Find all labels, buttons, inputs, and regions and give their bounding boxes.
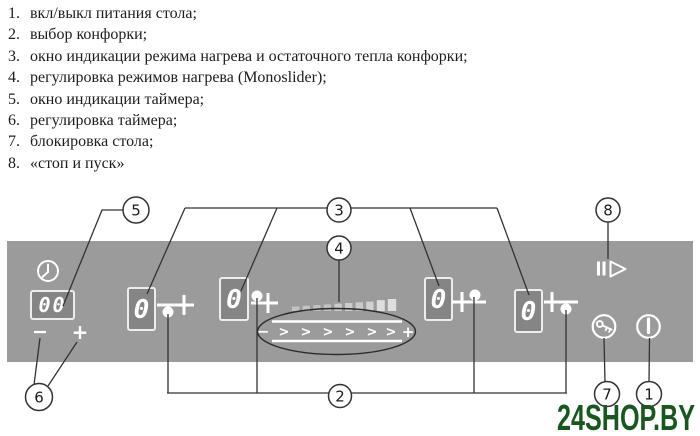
chevron-right-icon: >	[279, 325, 290, 340]
chevron-right-icon: >	[323, 325, 334, 340]
callout-3: 3	[327, 198, 351, 222]
burner-value: 0	[134, 295, 150, 325]
chevron-right-icon: >	[386, 325, 397, 340]
burner-display-1: 0	[128, 288, 155, 330]
callout-number: 3	[334, 202, 344, 220]
callout-8: 8	[596, 198, 620, 222]
callout-number: 2	[335, 388, 345, 406]
burner-value: 0	[521, 297, 537, 327]
chevron-right-icon: >	[345, 325, 356, 340]
watermark: 24SHOP.BY	[557, 397, 695, 436]
callout-5: 5	[123, 197, 149, 223]
chevron-right-icon: >	[367, 325, 378, 340]
control-panel-diagram: 00 − + 0 0 0 0	[0, 0, 700, 436]
callout-6: 6	[26, 384, 53, 411]
chevron-right-icon: >	[301, 325, 312, 340]
control-panel	[7, 241, 693, 362]
callout-number: 6	[34, 389, 44, 407]
timer-plus-button: +	[72, 320, 89, 344]
callout-number: 8	[603, 202, 613, 220]
callout-number: 4	[334, 240, 344, 258]
callout-number: 5	[131, 202, 141, 220]
slider-minus-label: −	[257, 323, 270, 341]
burner-value: 0	[431, 285, 447, 315]
burner-value: 0	[226, 285, 242, 315]
burner-display-4: 0	[515, 290, 542, 332]
timer-value: 00	[38, 293, 66, 317]
manual-page: 1.вкл/выкл питания стола; 2.выбор конфор…	[0, 0, 700, 436]
callout-2: 2	[329, 385, 352, 408]
callout-line-1	[649, 338, 650, 382]
callout-4: 4	[327, 236, 351, 260]
